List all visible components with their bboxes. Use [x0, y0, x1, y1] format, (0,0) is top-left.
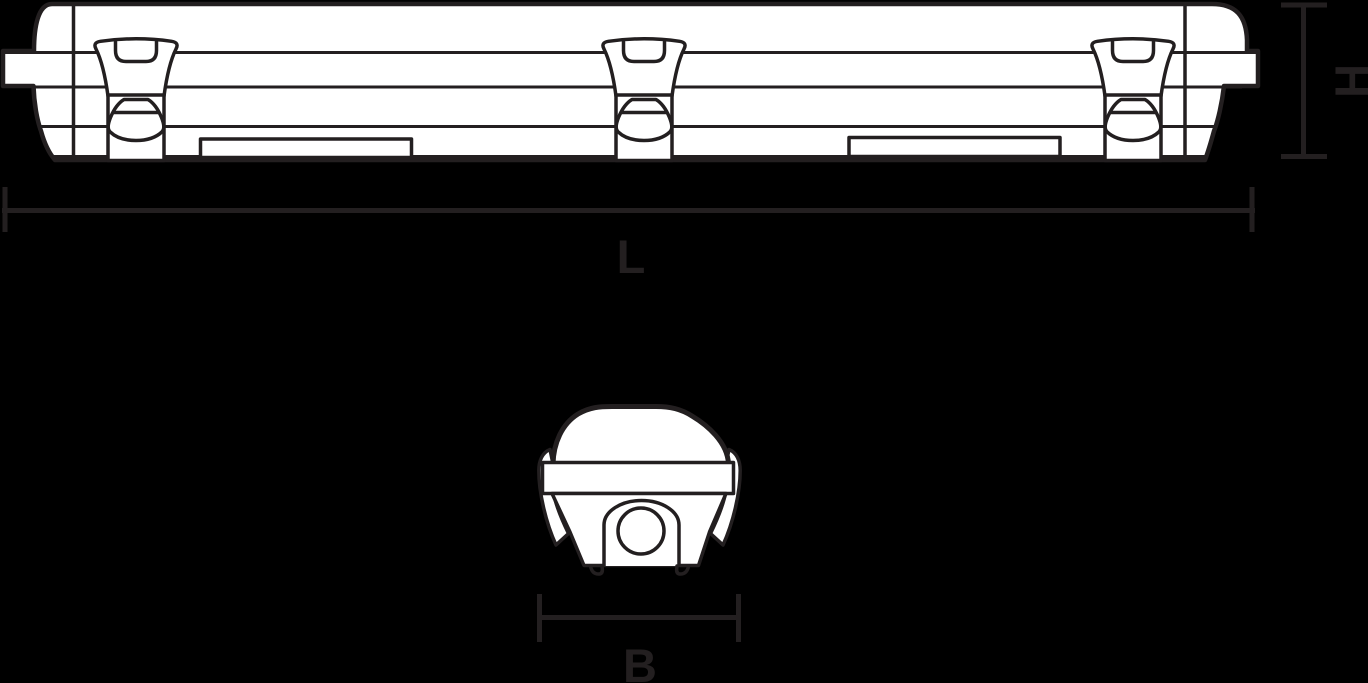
dimension-width: B — [537, 594, 741, 683]
dimension-height: H — [1281, 5, 1368, 157]
dimensional-drawing-canvas: L H B — [0, 0, 1368, 683]
mounting-clip-right — [1092, 39, 1174, 161]
diffuser-panel-right — [849, 138, 1060, 157]
section-dome — [553, 407, 729, 465]
width-label: B — [623, 639, 657, 683]
mounting-clip-left — [95, 39, 177, 161]
side-view — [3, 4, 1258, 161]
section-clip-band — [543, 463, 734, 494]
dimension-length: L — [2, 187, 1255, 283]
luminaire-dimensional-drawing: L H B — [0, 0, 1368, 683]
section-gland-arch — [604, 501, 679, 567]
length-label: L — [617, 230, 646, 283]
mounting-clip-middle — [603, 39, 685, 161]
cross-section-view — [539, 407, 740, 575]
diffuser-panel-left — [201, 139, 412, 158]
height-label: H — [1326, 64, 1368, 98]
